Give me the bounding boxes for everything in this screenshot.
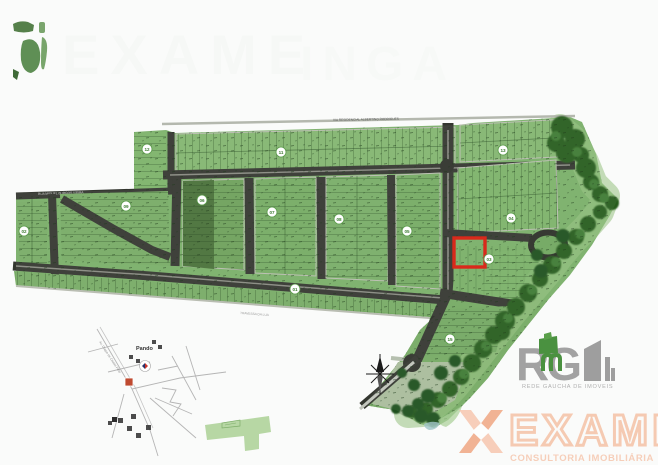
svg-text:08: 08 (336, 217, 342, 222)
svg-text:04: 04 (508, 216, 514, 221)
svg-text:06: 06 (199, 198, 205, 203)
svg-text:13: 13 (500, 148, 506, 153)
svg-text:EXAME: EXAME (509, 406, 658, 455)
svg-text:05: 05 (404, 229, 410, 234)
svg-text:Pando: Pando (136, 346, 153, 352)
svg-text:09: 09 (123, 204, 129, 209)
svg-text:12: 12 (144, 147, 150, 152)
svg-text:REDE GAUCHA DE IMOVEIS: REDE GAUCHA DE IMOVEIS (522, 384, 613, 390)
svg-text:CONSULTORIA IMOBILIÁRIA: CONSULTORIA IMOBILIÁRIA (510, 453, 654, 464)
svg-text:02: 02 (21, 229, 27, 234)
svg-text:15: 15 (447, 337, 453, 342)
svg-text:11: 11 (279, 150, 284, 155)
svg-text:07: 07 (269, 210, 275, 215)
svg-text:INGA: INGA (300, 38, 456, 91)
svg-text:01: 01 (292, 287, 298, 292)
svg-text:03: 03 (486, 257, 492, 262)
svg-text:EXAME: EXAME (62, 23, 316, 86)
